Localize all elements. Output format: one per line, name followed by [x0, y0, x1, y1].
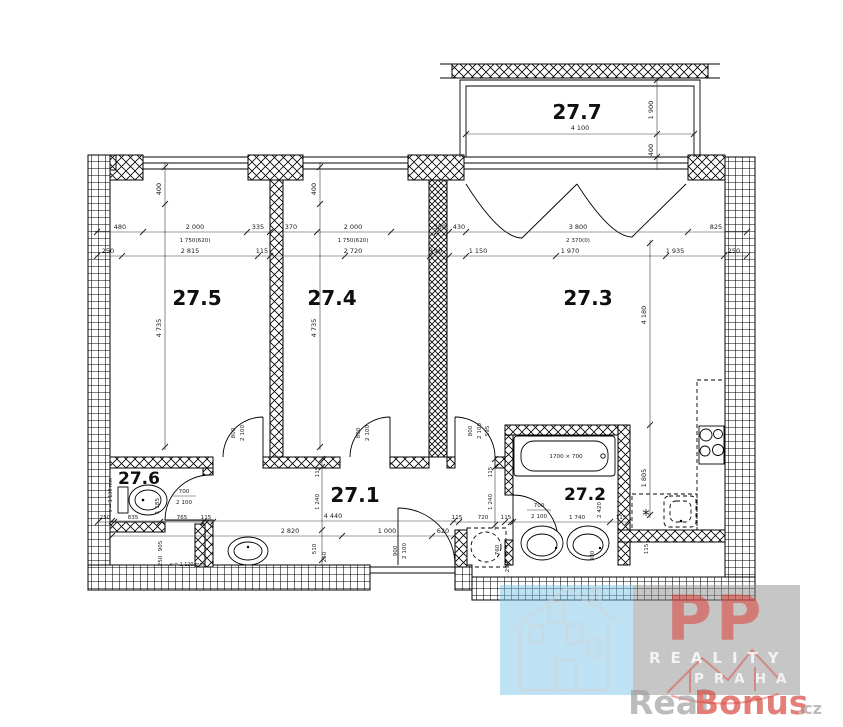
door-dim: 595 — [485, 425, 491, 436]
washbasin-tap — [247, 546, 249, 548]
dim-label: 835 — [128, 515, 139, 521]
door-dim: 2 100 — [477, 423, 483, 439]
dim-label: 4 735 — [155, 319, 163, 338]
bottom-wall-left — [88, 565, 370, 590]
kitchen-sink-drain — [680, 520, 683, 523]
dim-label: 250 — [322, 551, 328, 562]
washbasin-inner — [234, 542, 262, 560]
dim-label: 765 — [177, 515, 188, 521]
dim-label: 115 — [201, 515, 212, 521]
entrance-threshold — [370, 567, 455, 573]
dim-label: 370 — [285, 223, 297, 231]
door-27-6 — [165, 475, 210, 520]
dim-label: 825 — [710, 223, 722, 231]
dim-label: 250 — [102, 247, 114, 255]
dim-label: 250 — [100, 515, 111, 521]
dim-label: 2 720 — [344, 247, 363, 255]
dim-label: 400 — [155, 183, 163, 195]
dim-label: 1 970 — [561, 247, 580, 255]
dim-label: 1 240 — [315, 494, 321, 510]
dim-label: 1 805 — [640, 469, 648, 488]
door-dim: 900 — [393, 545, 399, 556]
dim-label: 4 180 — [640, 306, 648, 325]
dim-label: 250 — [728, 247, 740, 255]
bath-basin-right-drain — [599, 547, 601, 549]
door-dim: 800 — [468, 425, 474, 436]
bathroom-top-wall — [505, 425, 630, 435]
wc-right-wall — [203, 468, 213, 475]
dim-label: 2 370(0) — [566, 238, 590, 244]
dim-label: 510 — [312, 543, 318, 554]
bath-basin-right-inner — [573, 534, 603, 556]
dim-label: 1 240 — [488, 494, 494, 510]
dim-label: 480 — [114, 223, 126, 231]
room-label-27-5: 27.5 — [172, 286, 221, 310]
hall-wall-segment — [447, 457, 455, 468]
toilet-flush — [142, 499, 145, 502]
star-symbol: * — [642, 506, 650, 524]
toilet-tank — [118, 487, 128, 513]
room-label-27-3: 27.3 — [563, 286, 612, 310]
dim-label: 290 — [505, 561, 511, 572]
dim-label: 1 750(620) — [337, 238, 368, 244]
logo-bonus-text: Bonus — [694, 683, 808, 722]
balcony — [440, 64, 720, 238]
wall-27-5-27-4 — [270, 180, 283, 457]
dim-label: 2 000 — [186, 223, 205, 231]
dim-label: 400 — [647, 144, 655, 156]
top-wall-segment — [408, 155, 464, 180]
basin-nook-wall — [195, 524, 205, 567]
left-wall — [88, 155, 110, 590]
wc-height-label: v = 1 130 mm — [108, 477, 114, 512]
hall-wall-segment — [390, 457, 429, 468]
door-dim: 700 — [534, 503, 545, 509]
dim-label: 1 740 — [569, 515, 585, 521]
dim-label: 190 — [430, 247, 442, 255]
dim-label: 335 — [252, 223, 264, 231]
dim-label: 1 185 — [155, 498, 161, 514]
door-dim: 2 100 — [402, 543, 408, 559]
dim-label: 2 815 — [181, 247, 200, 255]
dim-label: 720 — [478, 515, 489, 521]
dim-label: 3 800 — [569, 223, 588, 231]
dim-label: 400 — [310, 183, 318, 195]
dim-label: 300 — [590, 550, 596, 561]
room-label-27-1: 27.1 — [330, 483, 379, 507]
bathtub-size-label: 1700 × 700 — [549, 454, 583, 460]
top-wall-segment — [688, 155, 725, 180]
hall-wall-segment — [263, 457, 340, 468]
balcony-door-left — [466, 184, 577, 238]
floor-plan-page: 480 2 000 335 370 2 000 350 430 3 800 82… — [0, 0, 843, 727]
dim-label: 905 — [158, 540, 164, 551]
balcony-door-right — [577, 184, 686, 237]
door-dim: 700 — [179, 489, 190, 495]
logo-reality-text: REALITY — [649, 649, 789, 667]
room-label-27-6: 27.6 — [118, 469, 160, 489]
bath-basin-left-drain — [555, 547, 557, 549]
dim-label: 115 — [644, 543, 650, 554]
door-dim: 2 100 — [365, 425, 371, 441]
wc-bottom-wall — [110, 522, 165, 532]
door-dim: 2 100 — [531, 514, 547, 520]
dim-label: 115 — [616, 515, 627, 521]
dim-label: 115 — [256, 247, 268, 255]
hall-wall-segment — [110, 457, 213, 468]
logo-cz-text: .cz — [797, 699, 822, 718]
dim-label: 760 — [495, 544, 501, 555]
logo-realbonus-text: Real Bonus .cz — [628, 683, 822, 722]
room-labels: 27.5 27.4 27.3 27.7 27.1 27.2 27.6 1700 … — [108, 100, 650, 568]
room-label-27-7: 27.7 — [552, 100, 601, 124]
hall-wall-segment — [495, 457, 505, 468]
dim-label: 2 000 — [344, 223, 363, 231]
bottom-wall-mid — [455, 565, 472, 590]
logo-pp-text: PP — [667, 582, 766, 655]
room-label-27-4: 27.4 — [307, 286, 356, 310]
room-label-27-2: 27.2 — [564, 485, 606, 505]
dim-label: 115 — [452, 515, 463, 521]
dim-label: 115 — [501, 515, 512, 521]
dim-label: 250 — [158, 555, 164, 566]
basin-height-label: v = 1 120 mm — [170, 562, 205, 568]
kitchen-sink-inner — [670, 501, 691, 522]
dim-label: 2 820 — [281, 527, 300, 535]
dim-label: 4 735 — [310, 319, 318, 338]
door-dim: 800 — [231, 427, 237, 438]
watermark-logo: PP REALITY PRAHA Real Bonus .cz — [500, 582, 822, 722]
kitchen-bottom-wall — [618, 530, 725, 542]
dim-label: 430 — [453, 223, 465, 231]
door-dim: 2 100 — [176, 500, 192, 506]
shaft-wall — [429, 180, 447, 457]
dim-label: 1 900 — [647, 101, 655, 120]
dim-label: 1 750(620) — [179, 238, 210, 244]
right-wall — [725, 157, 755, 600]
bathroom-left-wall — [505, 435, 513, 495]
balcony-railing — [452, 64, 708, 78]
top-wall-segment — [248, 155, 303, 180]
door-dim: 800 — [356, 427, 362, 438]
dim-label: 115 — [488, 466, 494, 477]
bathroom-right-wall — [618, 425, 630, 565]
dim-label: 4 100 — [571, 124, 590, 132]
bath-basin-left-inner — [527, 534, 557, 556]
dim-label: 1 935 — [666, 247, 685, 255]
niche-wall — [455, 530, 467, 567]
floor-plan-svg: 480 2 000 335 370 2 000 350 430 3 800 82… — [0, 0, 843, 727]
dim-label: 620 — [437, 527, 449, 535]
dim-label: 1 000 — [378, 527, 397, 535]
dim-label: 350 — [434, 223, 446, 231]
dim-label: 1 150 — [469, 247, 488, 255]
door-dim: 2 100 — [240, 425, 246, 441]
dim-label: 115 — [315, 466, 321, 477]
dim-label: 4 440 — [324, 512, 343, 520]
